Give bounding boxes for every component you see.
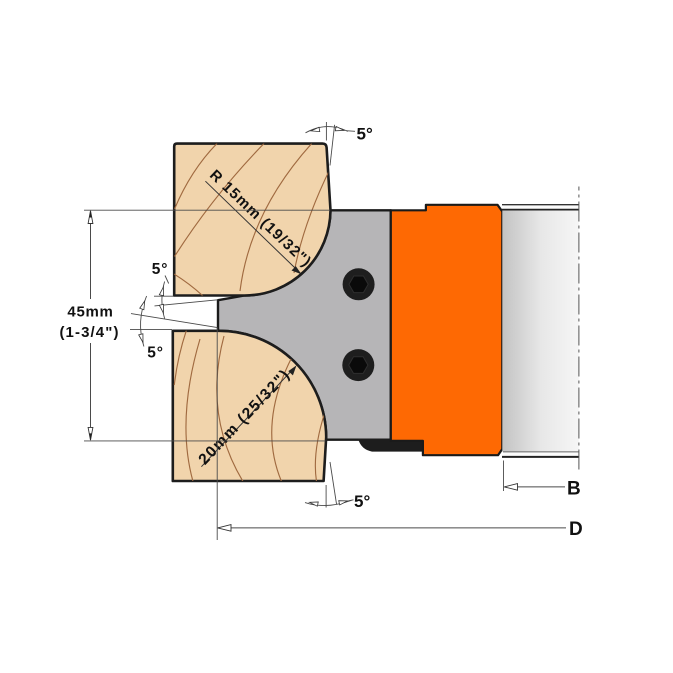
svg-text:5°: 5° [152, 261, 168, 278]
svg-text:D: D [569, 519, 583, 540]
svg-text:(1-3/4"): (1-3/4") [59, 324, 119, 341]
svg-text:B: B [567, 478, 581, 499]
svg-text:5°: 5° [357, 125, 373, 144]
svg-text:5°: 5° [147, 345, 163, 362]
svg-text:45mm: 45mm [67, 304, 113, 321]
svg-text:5°: 5° [354, 492, 370, 511]
